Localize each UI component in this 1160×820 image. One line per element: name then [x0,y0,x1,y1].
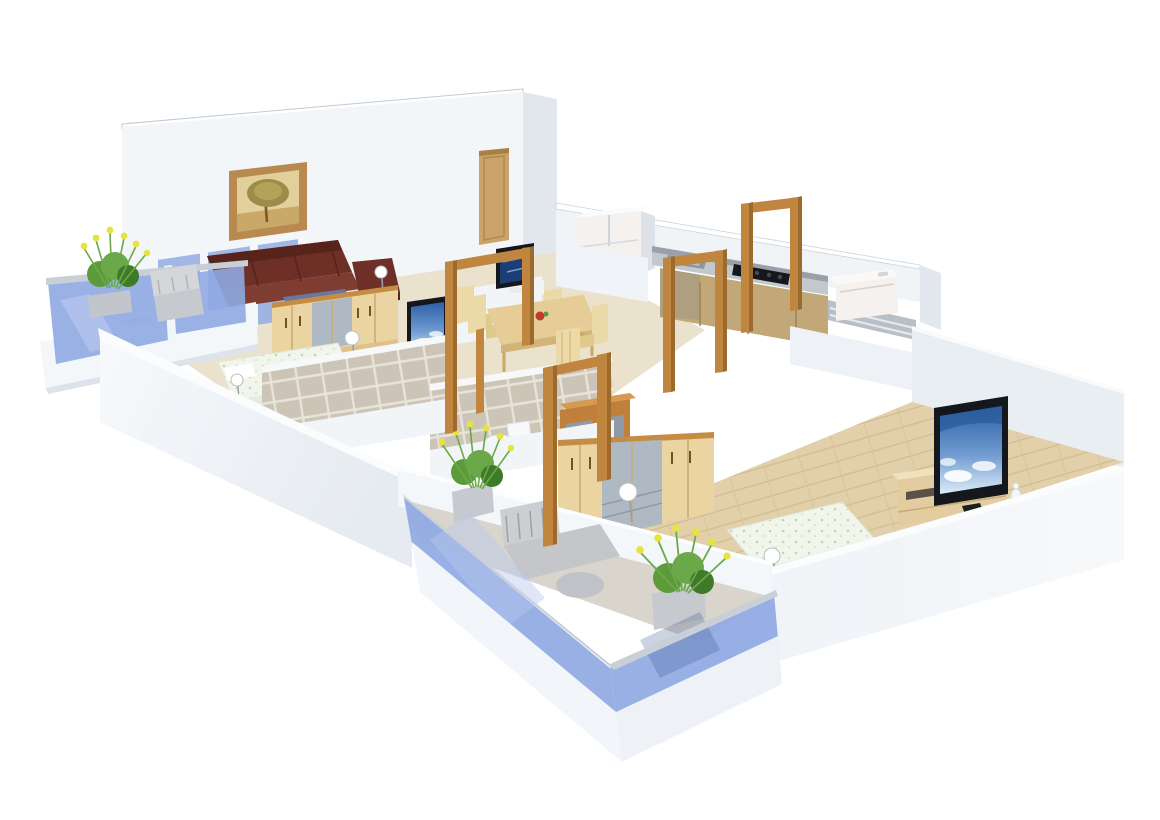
ottoman [556,572,604,598]
outdoor-chair [150,264,204,322]
tv-stand-base [509,287,523,293]
ball-lamp [375,266,387,278]
wall-side-return [523,92,557,259]
floorplan-3d-scene [0,0,1160,820]
fruit-bowl [536,312,545,321]
tree-wall-art [229,162,307,241]
floorplan-render-canvas [0,0,1160,820]
washing-machine [830,269,898,321]
entrance-door [479,148,509,245]
ball-floor-lamp [619,483,637,501]
